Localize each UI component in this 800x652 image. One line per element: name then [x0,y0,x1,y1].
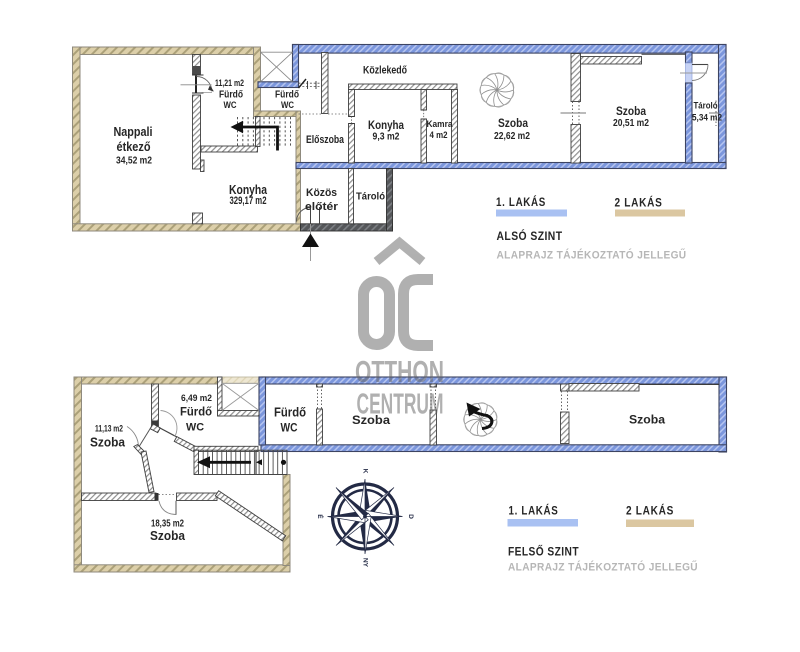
svg-text:NY: NY [361,558,368,568]
svg-text:ALSÓ SZINT: ALSÓ SZINT [497,228,563,243]
svg-text:WC: WC [224,100,237,111]
svg-text:1. LAKÁS: 1. LAKÁS [509,505,559,518]
svg-text:1. LAKÁS: 1. LAKÁS [496,196,546,209]
svg-text:2 LAKÁS: 2 LAKÁS [615,197,663,210]
svg-text:Szoba: Szoba [498,116,528,130]
svg-text:Szoba: Szoba [90,436,126,450]
svg-text:Kamra: Kamra [427,119,454,129]
svg-text:11,21 m2: 11,21 m2 [215,78,244,88]
svg-text:Szoba: Szoba [629,413,665,427]
svg-text:ALAPRAJZ TÁJÉKOZTATÓ JELLEGŰ: ALAPRAJZ TÁJÉKOZTATÓ JELLEGŰ [497,249,687,262]
svg-text:étkező: étkező [117,140,151,154]
svg-text:Fürdő: Fürdő [219,89,243,101]
svg-text:Közös: Közös [306,187,337,199]
svg-text:WC: WC [186,422,204,434]
svg-text:D: D [407,514,414,519]
svg-text:Fürdő: Fürdő [275,89,299,101]
svg-text:K: K [361,469,368,474]
svg-text:Tároló: Tároló [694,101,718,112]
svg-text:22,62 m2: 22,62 m2 [494,131,530,142]
svg-text:OTTHON: OTTHON [355,354,444,389]
svg-text:FELSŐ SZINT: FELSŐ SZINT [508,544,579,559]
svg-text:WC: WC [281,100,294,111]
svg-text:É: É [316,514,325,519]
svg-text:Fürdő: Fürdő [274,406,306,420]
svg-text:20,51 m2: 20,51 m2 [613,118,649,129]
svg-text:ALAPRAJZ TÁJÉKOZTATÓ JELLEGŰ: ALAPRAJZ TÁJÉKOZTATÓ JELLEGŰ [508,561,698,574]
svg-text:Előszoba: Előszoba [306,134,345,146]
svg-text:WC: WC [281,423,298,435]
svg-text:34,52 m2: 34,52 m2 [116,155,152,167]
svg-text:Fürdő: Fürdő [180,405,212,419]
svg-text:Nappali: Nappali [114,125,153,139]
svg-text:6,49 m2: 6,49 m2 [181,393,212,403]
svg-text:Közlekedő: Közlekedő [363,65,407,77]
svg-text:329,17 m2: 329,17 m2 [230,195,267,207]
svg-text:2 LAKÁS: 2 LAKÁS [626,505,674,518]
svg-text:Szoba: Szoba [616,104,646,118]
svg-text:előtér: előtér [305,201,339,213]
svg-text:CENTRUM: CENTRUM [357,389,444,421]
svg-text:Szoba: Szoba [150,528,186,543]
svg-text:5,34 m2: 5,34 m2 [692,113,722,124]
svg-text:11,13 m2: 11,13 m2 [95,424,123,434]
svg-text:4 m2: 4 m2 [430,130,448,140]
svg-text:9,3 m2: 9,3 m2 [373,132,400,143]
svg-text:Konyha: Konyha [368,118,404,132]
svg-text:Tároló: Tároló [356,191,385,203]
